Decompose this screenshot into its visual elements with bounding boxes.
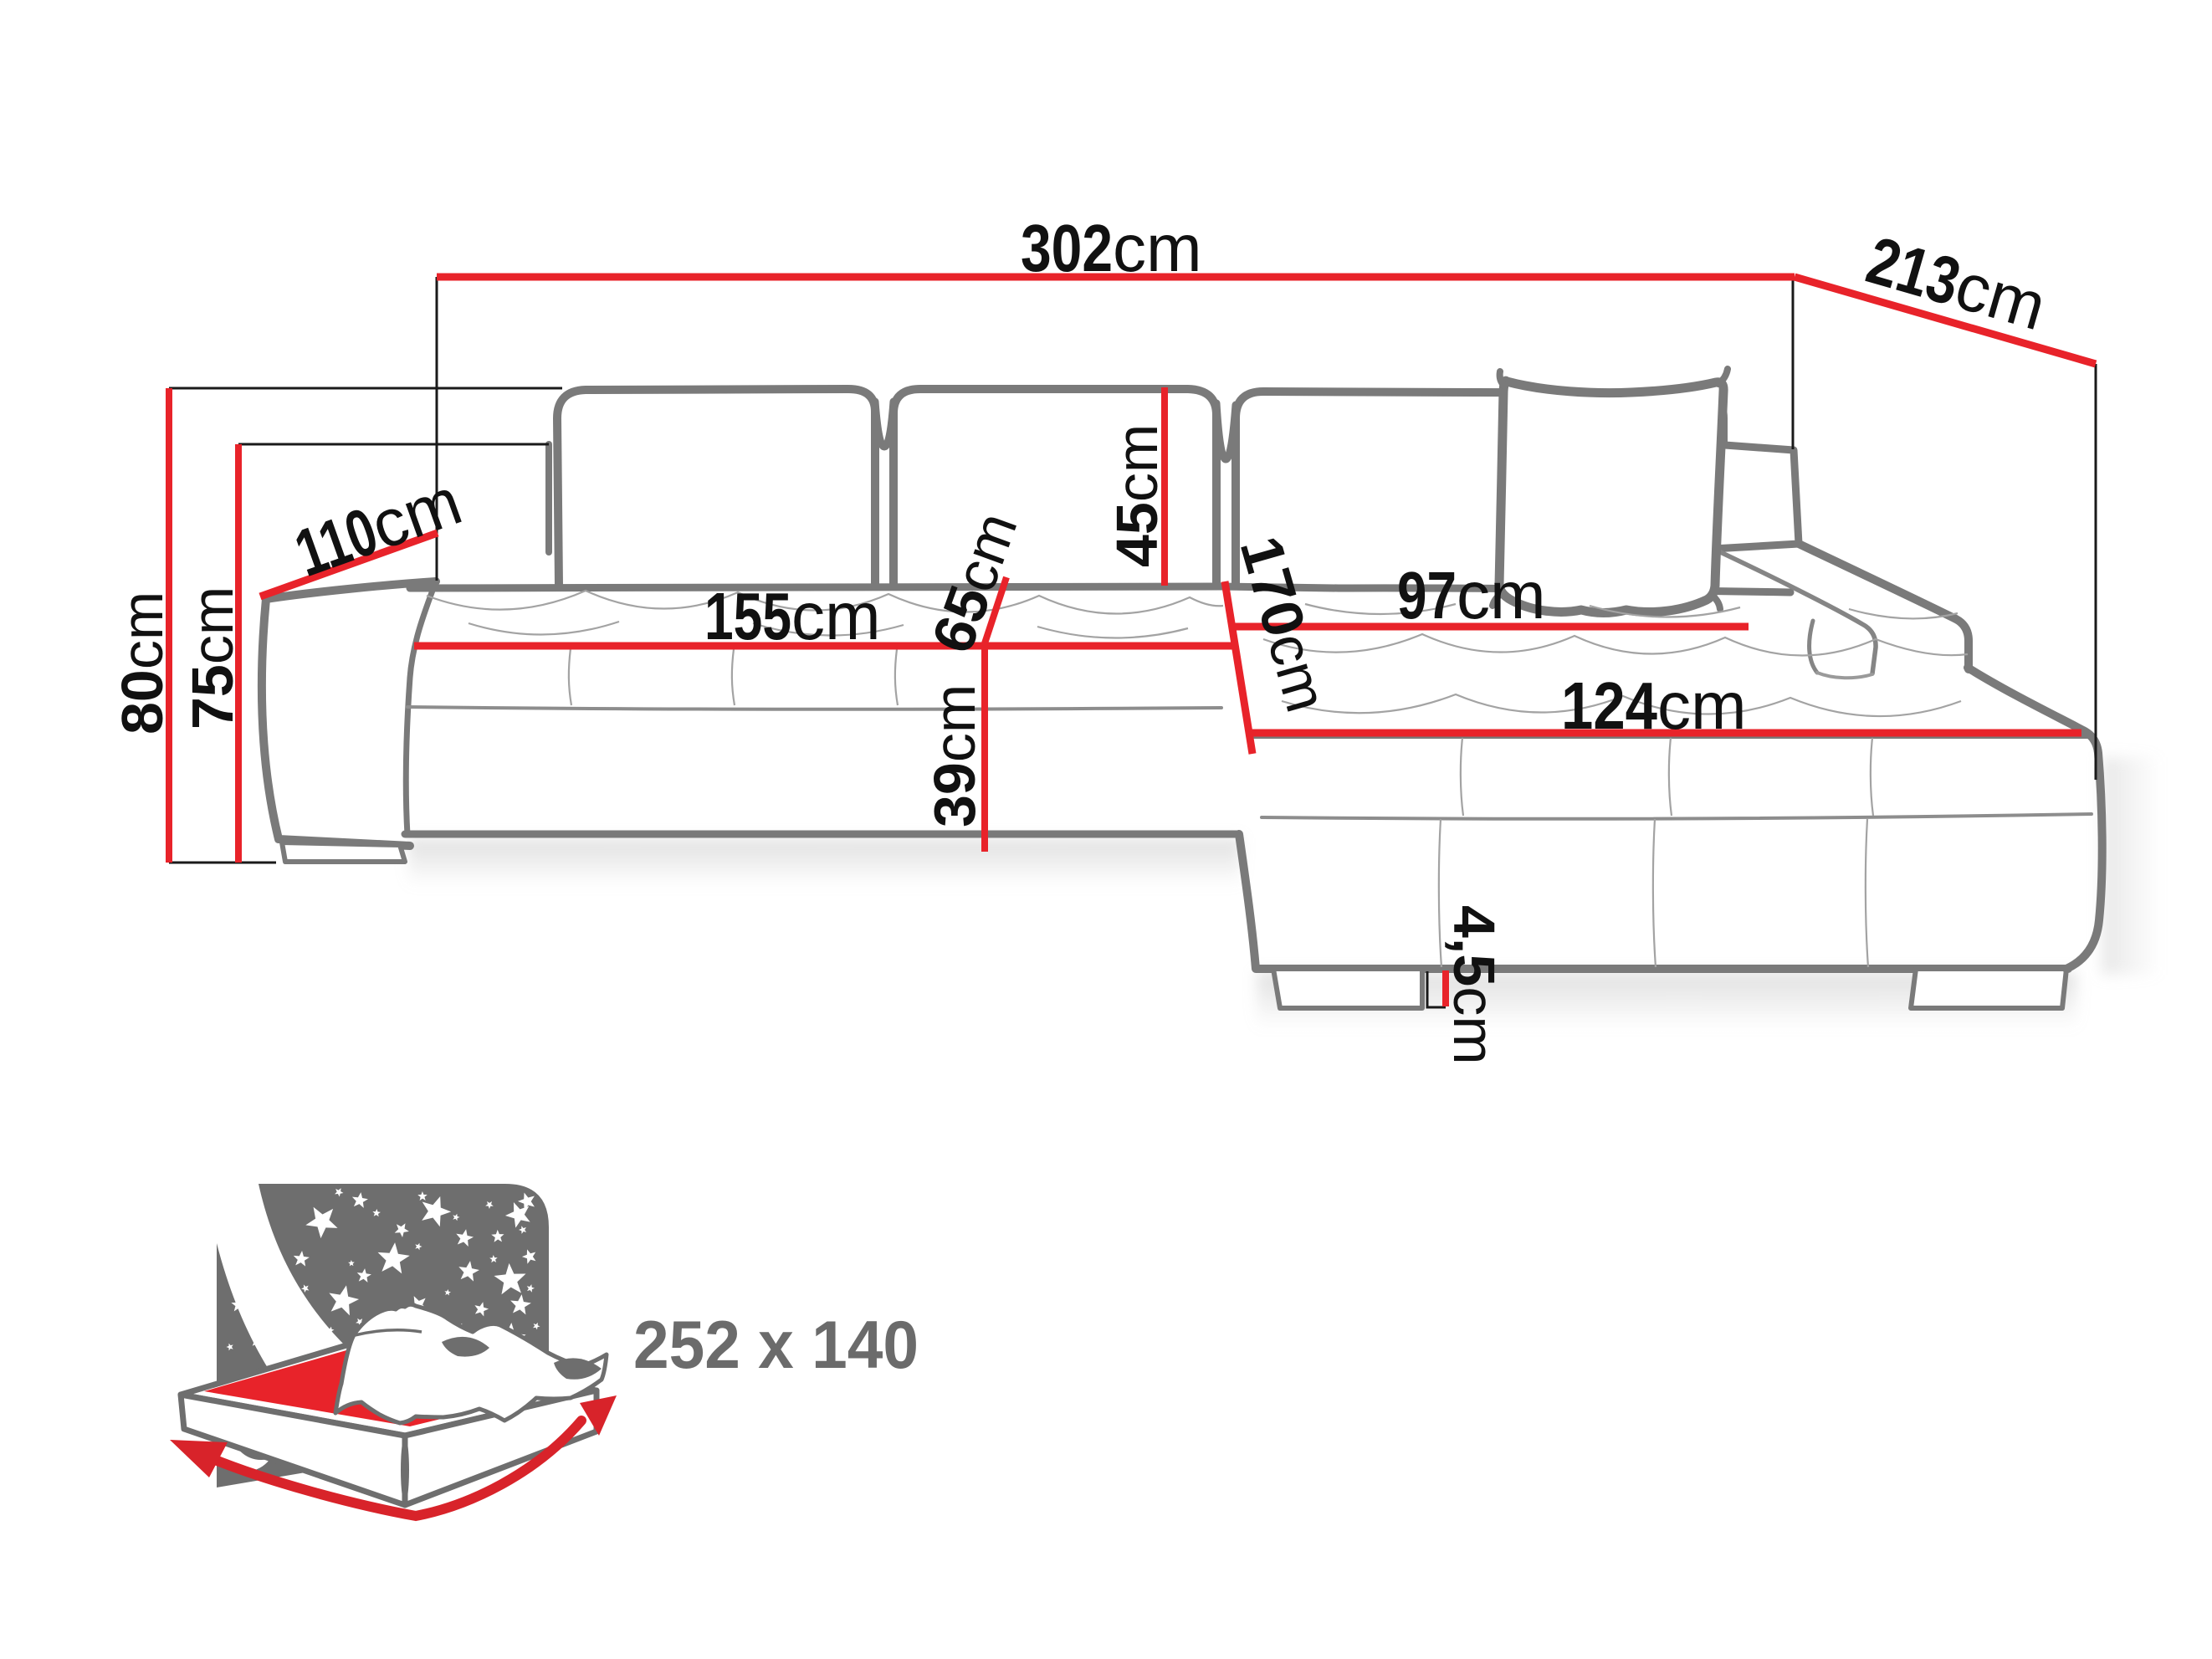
svg-text:124cm: 124cm [1561, 668, 1747, 743]
svg-text:39cm: 39cm [922, 684, 987, 827]
svg-text:110cm: 110cm [286, 463, 471, 591]
svg-text:80cm: 80cm [110, 591, 175, 735]
svg-text:252 x 140: 252 x 140 [633, 1308, 919, 1383]
svg-text:302cm: 302cm [1021, 211, 1202, 285]
svg-text:45cm: 45cm [1104, 424, 1170, 567]
svg-text:4,5cm: 4,5cm [1441, 905, 1507, 1065]
svg-text:75cm: 75cm [180, 586, 245, 730]
svg-text:155cm: 155cm [704, 579, 881, 653]
svg-text:97cm: 97cm [1397, 558, 1546, 632]
